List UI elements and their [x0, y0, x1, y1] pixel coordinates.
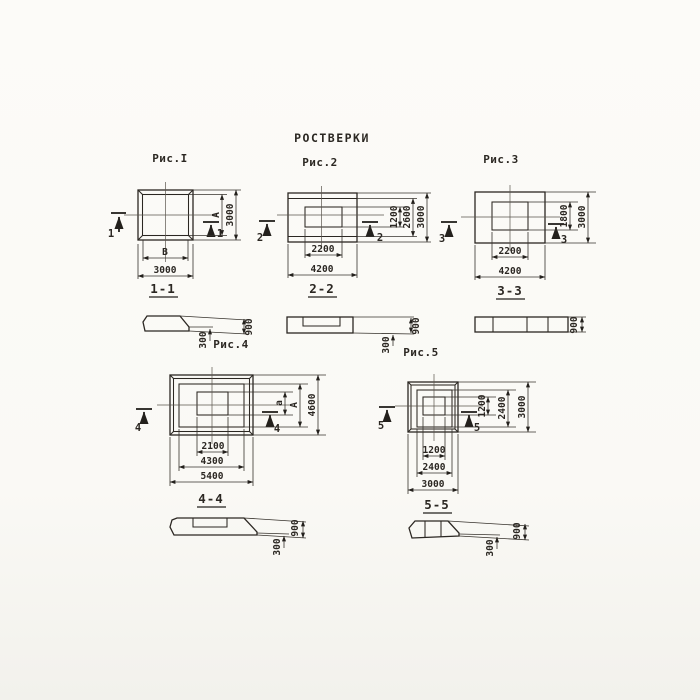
fig1-dim-B: В: [162, 247, 168, 258]
section5-thickness: 300: [485, 539, 496, 556]
svg-text:5400: 5400: [201, 471, 224, 482]
svg-text:4300: 4300: [201, 456, 224, 467]
fig2-dim-bottom-2200: 2200: [305, 229, 342, 258]
fig3-section-title: 3-3: [497, 283, 523, 298]
fig5-section-title: 5-5: [424, 497, 450, 512]
fig2-section-title: 2-2: [309, 281, 335, 296]
fig2-dim-right-2600: 2600: [357, 199, 417, 237]
fig2-cut-number: 2: [257, 232, 263, 244]
fig4-dim-right-a: а: [228, 392, 293, 415]
svg-text:2200: 2200: [499, 246, 522, 257]
fig2-dim-right-1200: 1200: [342, 205, 404, 228]
svg-text:а: а: [274, 400, 285, 406]
section5-height: 900: [512, 522, 523, 539]
fig4-title: Рис.4: [213, 338, 249, 351]
fig2-plan: 2 2 2200 4200 1200 260: [257, 186, 431, 297]
fig5-title: Рис.5: [403, 346, 439, 359]
svg-text:3000: 3000: [577, 205, 588, 228]
svg-text:2100: 2100: [202, 441, 225, 452]
fig2-cut-mark-right: 2: [362, 222, 383, 244]
section1-height: 900: [244, 318, 255, 335]
svg-text:2600: 2600: [402, 205, 413, 228]
section2-height: 900: [411, 317, 422, 334]
fig1-cut-number: 1: [108, 228, 114, 240]
section2-thickness: 300: [381, 336, 392, 353]
section-4-4-view: 300 900: [170, 518, 306, 556]
section-5-5-view: 300 900: [409, 521, 529, 557]
fig4-cut-mark-right: 4: [262, 412, 280, 435]
fig1-cut-mark-right: 1: [203, 222, 223, 240]
scanned-drawing-page: РОСТВЕРКИ Рис.I Рис.2 Рис.3 Рис.4 Рис.5 …: [0, 0, 700, 700]
svg-text:4200: 4200: [311, 264, 334, 275]
fig1-plan: 1 1 В 3000 А 3000: [108, 182, 241, 297]
svg-text:2200: 2200: [312, 244, 335, 255]
svg-text:1800: 1800: [559, 204, 570, 227]
fig3-dim-right-3000: 3000: [545, 192, 596, 243]
svg-text:2400: 2400: [497, 396, 508, 419]
section-3-3-view: 900: [475, 316, 586, 333]
fig3-cut-mark-left: 3: [439, 222, 457, 245]
svg-text:1200: 1200: [477, 394, 488, 417]
fig3-dim-right-1800: 1800: [528, 202, 578, 230]
svg-text:А: А: [289, 402, 300, 408]
drawing-title: РОСТВЕРКИ: [294, 131, 370, 145]
fig1-cut-mark-left: 1: [108, 213, 126, 240]
fig4-dim-bottom-2100: 2100: [197, 417, 228, 456]
section4-thickness: 300: [272, 538, 283, 555]
fig5-cut-mark-left: 5: [378, 407, 395, 432]
svg-text:4600: 4600: [307, 393, 318, 416]
svg-text:1200: 1200: [423, 445, 446, 456]
fig3-cut-number: 3: [439, 233, 445, 245]
fig4-section-title: 4-4: [198, 491, 224, 506]
fig2-cut-mark-left: 2: [257, 221, 275, 244]
fig1-section-title: 1-1: [150, 281, 176, 296]
fig1-dim-3000-right: 3000: [225, 203, 236, 226]
fig3-plan: 3 3 2200 4200 1800 300: [439, 185, 596, 299]
section-2-2-view: 900 300: [287, 317, 422, 354]
fig4-cut-mark-left: 4: [135, 409, 152, 434]
fig5-cut-number: 5: [378, 420, 384, 432]
fig1-dim-3000-bottom: 3000: [154, 265, 177, 276]
drawing-canvas: РОСТВЕРКИ Рис.I Рис.2 Рис.3 Рис.4 Рис.5 …: [0, 0, 700, 700]
svg-text:3000: 3000: [416, 205, 427, 228]
fig3-cut-number: 3: [561, 234, 567, 246]
svg-text:3000: 3000: [422, 479, 445, 490]
svg-text:4200: 4200: [499, 266, 522, 277]
section1-thickness: 300: [198, 331, 209, 348]
svg-text:2400: 2400: [423, 462, 446, 473]
svg-text:3000: 3000: [517, 395, 528, 418]
fig3-title: Рис.3: [483, 153, 519, 166]
fig4-plan: 4 4 а А 4600 2100: [135, 367, 326, 507]
svg-text:1200: 1200: [389, 205, 400, 228]
drawing-header: РОСТВЕРКИ Рис.I Рис.2 Рис.3 Рис.4 Рис.5: [152, 131, 519, 359]
section4-height: 900: [290, 519, 301, 536]
fig1-dim-A: А: [211, 212, 222, 218]
fig4-cut-number: 4: [274, 423, 280, 435]
fig1-title: Рис.I: [152, 152, 188, 165]
fig4-cut-number: 4: [135, 422, 141, 434]
section3-height: 900: [569, 316, 580, 333]
fig5-plan: 5 5 1200 2400 3000 120: [378, 374, 536, 513]
fig2-title: Рис.2: [302, 156, 338, 169]
